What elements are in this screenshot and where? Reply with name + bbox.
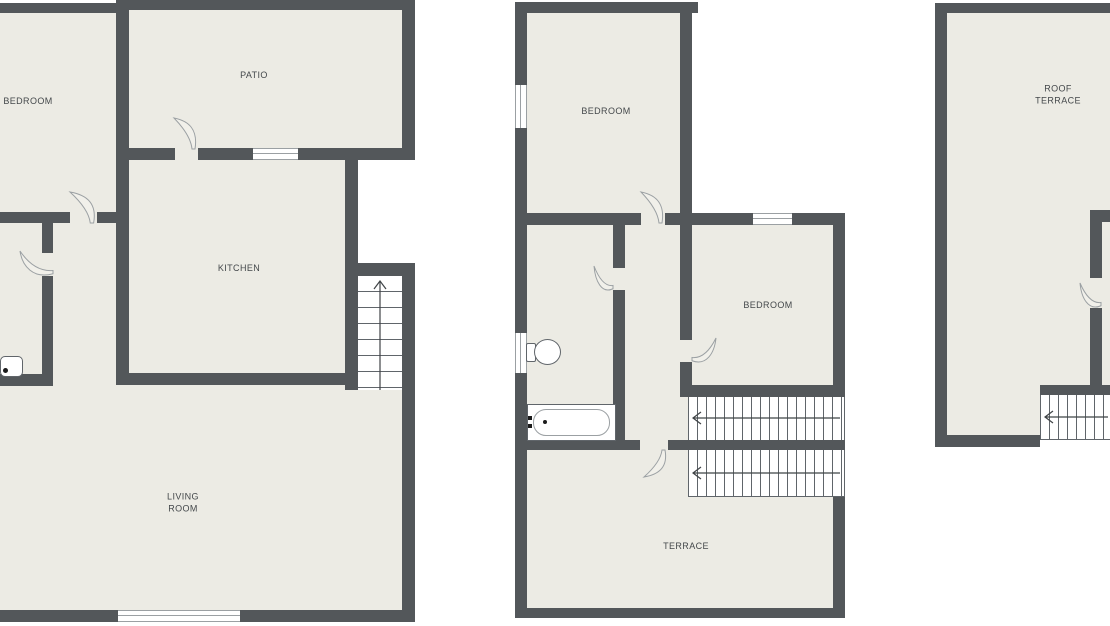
roof-terrace-door — [1080, 283, 1101, 309]
wall — [1090, 308, 1102, 395]
wall — [1090, 210, 1110, 222]
wall — [935, 3, 947, 447]
floor-plan-canvas: BEDROOM PATIO KITCHEN LIVING ROOM — [0, 0, 1110, 626]
wall — [1040, 385, 1110, 395]
wall — [935, 435, 1040, 447]
wall — [935, 3, 1110, 13]
wall — [1090, 222, 1102, 278]
stairs — [1040, 395, 1110, 440]
stairs-left-arrow — [1040, 395, 1110, 440]
floor-plan-roof: ROOF TERRACE — [0, 0, 1110, 626]
roof-terrace-floor — [947, 13, 1110, 435]
room-label-roof-terrace: ROOF TERRACE — [1035, 83, 1081, 106]
